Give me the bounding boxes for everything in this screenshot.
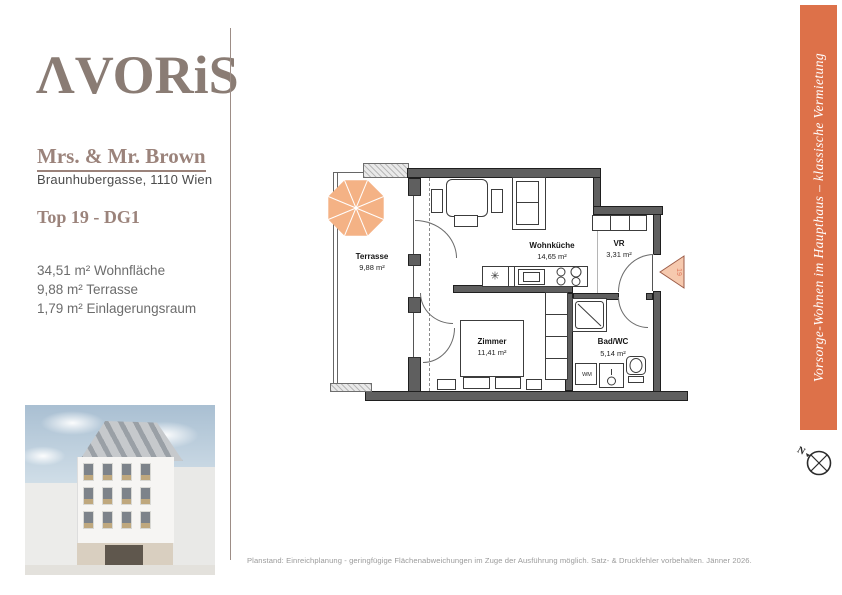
wall-segment [653,214,661,255]
nightstand [437,379,456,390]
shower-icon [572,298,608,334]
pillow [463,377,490,389]
brochure-page: ΛVORiS Mrs. & Mr. Brown Braunhubergasse,… [0,0,842,595]
wall-segment [365,391,688,401]
toilet-icon [624,355,648,385]
compass-icon: N [792,440,838,482]
chair [491,189,503,213]
terrace-railing [333,172,365,173]
room-label-wohnkueche: Wohnküche [529,241,574,250]
sink-icon: ✳ [490,270,499,283]
door-arc [618,254,654,292]
compass-north-label: N [795,445,807,458]
room-label-terrasse: Terrasse [356,252,389,261]
wall-segment [407,168,601,178]
oven-door [523,272,540,282]
room-area-vr: 3,31 m² [606,250,631,259]
chair [454,215,478,227]
bath-sink-icon [599,363,625,389]
sofa-cushion [516,181,539,225]
nightstand [526,379,542,390]
room-area-bad: 5,14 m² [600,349,625,358]
vr-wardrobe [592,215,647,231]
pillow [495,377,521,389]
counter-divider [514,266,515,287]
bedroom-wardrobe [545,292,568,380]
door-arc [420,293,453,324]
wall-segment [593,177,601,208]
dining-table [446,179,488,217]
entry-door-leaf [652,255,653,291]
room-label-zimmer: Zimmer [478,337,507,346]
door-arc [415,220,457,258]
floorplan: ✳ WM [0,0,842,595]
stove-icon [552,266,586,287]
counter-divider [508,266,509,287]
marketing-sidebar: Vorsorge-Wohnen im Haupthaus – klassisch… [800,5,837,430]
washing-machine-label: WM [582,372,592,378]
room-label-vr: VR [613,239,624,248]
sofa-line [516,202,539,203]
chair [431,189,443,213]
marketing-sidebar-text: Vorsorge-Wohnen im Haupthaus – klassisch… [811,53,827,382]
room-label-bad: Bad/WC [598,337,629,346]
room-area-zimmer: 11,41 m² [477,348,506,357]
footer-disclaimer: Planstand: Einreichplanung - geringfügig… [247,556,752,565]
entry-marker: 19 [656,252,688,292]
room-area-wohnkueche: 14,65 m² [537,252,567,261]
washing-machine: WM [575,363,597,385]
wall-segment [653,291,661,401]
room-area-terrasse: 9,88 m² [359,263,384,272]
door-arc [423,328,455,363]
window [408,312,421,358]
door-arc [618,297,648,328]
entry-marker-number: 19 [675,268,682,276]
wall-segment [330,383,372,392]
umbrella-icon [324,176,388,240]
